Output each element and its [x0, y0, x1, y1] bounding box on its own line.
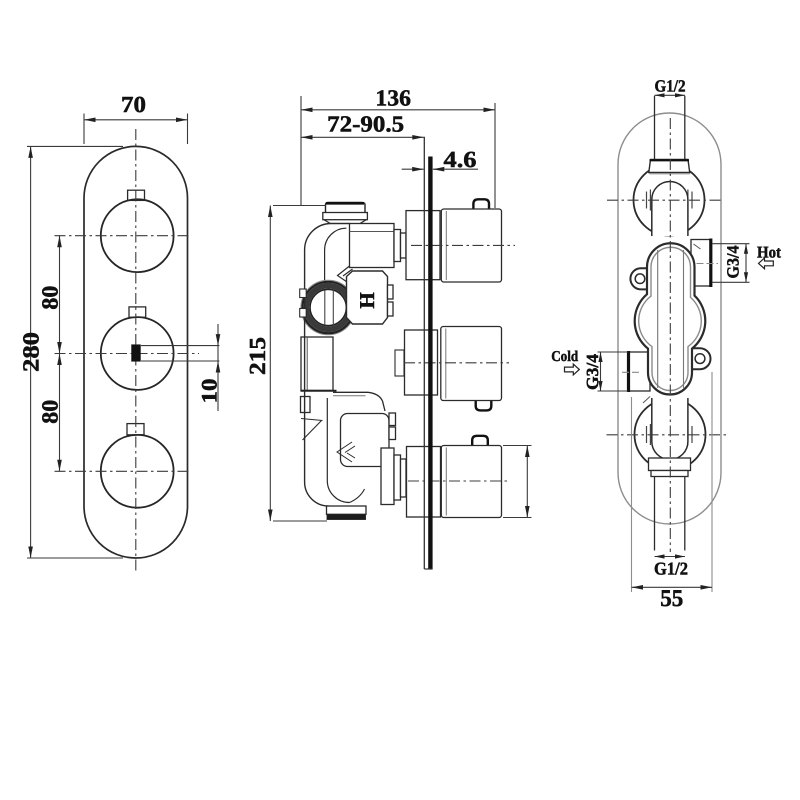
svg-text:136: 136	[375, 86, 411, 111]
svg-text:G3/4: G3/4	[583, 353, 602, 390]
svg-text:215: 215	[245, 337, 270, 375]
svg-text:Cold: Cold	[551, 349, 579, 365]
svg-text:G3/4: G3/4	[724, 245, 743, 278]
svg-text:280: 280	[19, 332, 44, 372]
svg-text:80: 80	[38, 400, 63, 424]
svg-text:H: H	[355, 292, 379, 308]
svg-text:10: 10	[197, 379, 222, 404]
svg-text:G1/2: G1/2	[655, 76, 686, 95]
svg-text:72-90.5: 72-90.5	[327, 112, 404, 137]
svg-text:80: 80	[38, 286, 63, 310]
svg-text:4.6: 4.6	[444, 147, 477, 172]
svg-text:70: 70	[121, 92, 146, 117]
svg-text:Hot: Hot	[757, 242, 781, 261]
svg-text:G1/2: G1/2	[654, 559, 688, 579]
svg-text:55: 55	[660, 586, 683, 612]
